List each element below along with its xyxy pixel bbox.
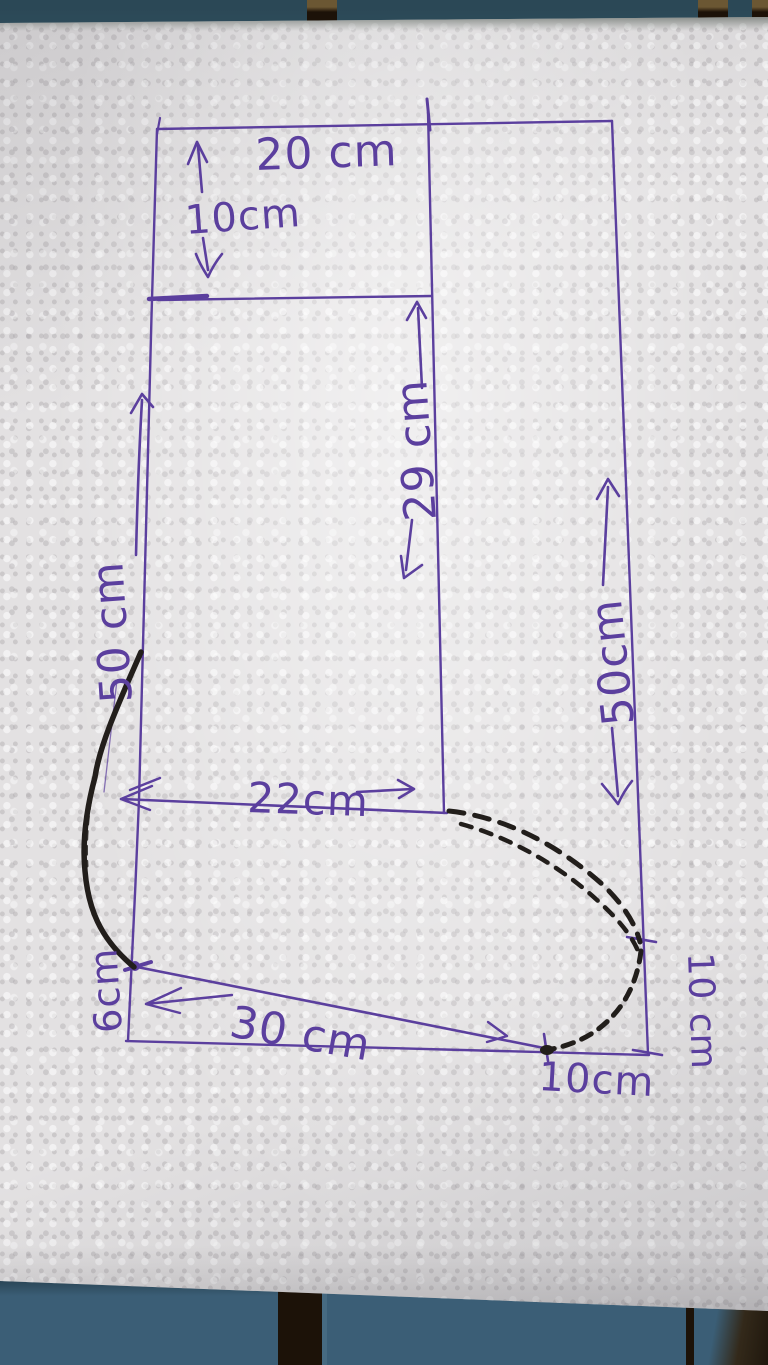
label-right-side: 50cm (581, 596, 645, 728)
cuff-line-bold-start (149, 296, 207, 299)
label-diagonal: 30 cm (226, 997, 375, 1072)
dim-10cm-arrow-up (188, 142, 207, 192)
dim-29cm-arrow-up (407, 302, 426, 388)
label-left-side: 50 cm (82, 560, 143, 705)
photo-of-hand-drawn-pattern: 20 cm 10cm 50 cm 29 cm 22cm 50cm 30 cm 6… (0, 0, 768, 1365)
label-inner-height: 29 cm (386, 378, 447, 523)
dim-50cm-right-arrow-up (597, 479, 619, 585)
label-cuff-height: 10cm (183, 190, 302, 244)
stocking-pattern-sketch: 20 cm 10cm 50 cm 29 cm 22cm 50cm 30 cm 6… (0, 0, 768, 1365)
dim-30cm-arrow-left (146, 988, 232, 1013)
toe-curve-outer (449, 811, 640, 942)
label-mid-width: 22cm (247, 773, 370, 826)
label-toe-height: 10 cm (679, 952, 724, 1070)
dim-29cm-arrow-down (401, 520, 422, 578)
dim-10cm-arrow-down (196, 238, 222, 277)
toe-curve-lower (552, 951, 641, 1049)
label-top-width: 20 cm (255, 125, 399, 181)
label-heel-height: 6cm (81, 946, 131, 1034)
dim-50cm-right-arrow-down (602, 728, 632, 804)
label-toe-width: 10cm (537, 1054, 655, 1106)
